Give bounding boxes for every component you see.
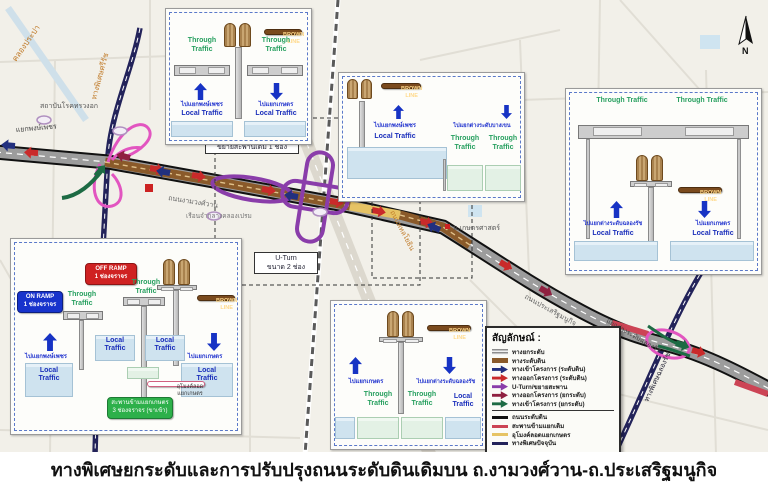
exit-ground-swatch <box>492 374 508 382</box>
north-label: N <box>742 46 749 56</box>
label-klong-prem-prison: เรือนจำกลางคลองเปรม <box>186 212 252 220</box>
elevated-deck <box>174 65 230 76</box>
monorail-train-icon <box>651 155 663 181</box>
local-road-bed <box>171 121 233 137</box>
center-pier <box>648 187 654 249</box>
legend-header: สัญลักษณ์ : <box>492 331 614 346</box>
brown-line-trains <box>224 23 251 47</box>
flyover-swatch <box>492 425 508 428</box>
brown-line-callout: BROWN LINE <box>264 29 302 35</box>
center-pier <box>235 47 242 119</box>
label-kasetsart-university: ม.เกษตรศาสตร์ <box>453 224 500 232</box>
local-road-bed <box>335 417 355 439</box>
direction-label-right: ไปแยกต่างระดับฉลองรัช <box>409 379 483 386</box>
through-traffic-label: Through Traffic <box>485 135 521 153</box>
project-map-poster: คลองประปา ทางพิเศษศรีรัช สถาบันโรคทรวงอก… <box>0 0 768 486</box>
direction-label-left: ไปแยกพงษ์เพชร <box>15 354 77 361</box>
direction-label-left: ไปแยกพงษ์เพชร <box>170 102 234 109</box>
north-arrow-icon: N <box>739 16 753 56</box>
bridge-callout-line1: สะพานข้ามแยกเกษตร <box>111 400 169 408</box>
elevated-deck-wide <box>578 125 749 139</box>
brown-line-trains <box>163 259 190 285</box>
direction-up-arrow <box>393 105 404 119</box>
direction-label-right: ไปแยกเกษตร <box>244 102 308 109</box>
cross-section-inset-b: BROWN LINE ไปแยกพงษ์เพชร Local Traffic T… <box>338 72 525 202</box>
through-traffic-label: Through Traffic <box>180 37 224 55</box>
monorail-train-icon <box>636 155 648 181</box>
direction-up-arrow <box>194 83 207 100</box>
local-traffic-label: Local Traffic <box>568 230 658 238</box>
elevated-deck <box>247 65 303 76</box>
monorail-train-icon <box>347 79 358 99</box>
poster-title: ทางพิเศษยกระดับและการปรับปรุงถนนระดับดิน… <box>51 455 717 484</box>
brown-line-trains <box>387 311 414 337</box>
through-traffic-label: Through Traffic <box>447 135 483 153</box>
direction-down-arrow <box>270 83 283 100</box>
through-traffic-label: Through Traffic <box>61 291 103 309</box>
monorail-train-icon <box>402 311 414 337</box>
direction-down-arrow <box>207 333 221 351</box>
brown-line-trains <box>347 79 372 99</box>
brown-line-trains <box>636 155 663 181</box>
local-road-bed <box>445 417 481 439</box>
brown-line-callout: BROWN LINE <box>197 295 235 301</box>
monorail-train-icon <box>224 23 236 47</box>
local-traffic-label: Local Traffic <box>151 337 179 354</box>
brown-line-label: BROWN LINE <box>449 328 470 342</box>
local-road-bed <box>574 241 658 261</box>
expand-bridge-text: ขยายสะพานเดิม 1 ช่อง <box>217 144 287 151</box>
on-ramp-line1: ON RAMP <box>21 294 59 302</box>
local-traffic-label: Local Traffic <box>443 393 483 410</box>
monorail-train-icon <box>387 311 399 337</box>
direction-down-arrow <box>443 357 456 374</box>
direction-label-left: ไปแยกพงษ์เพชร <box>349 123 441 130</box>
direction-up-arrow <box>349 357 362 374</box>
entrance-ground-swatch <box>492 365 508 373</box>
tunnel-callout: อุโมงค์ลอดแยกเกษตร <box>147 381 205 387</box>
elevated-road-swatch <box>492 349 508 355</box>
mall-marker <box>145 184 153 192</box>
local-traffic-label: Local Traffic <box>170 110 234 118</box>
through-traffic-label: Through Traffic <box>254 37 298 55</box>
through-traffic-label: Through Traffic <box>401 391 443 409</box>
local-traffic-label: Local Traffic <box>349 133 441 141</box>
entrance-elevated-swatch <box>492 400 508 408</box>
local-traffic-label: Local Traffic <box>244 110 308 118</box>
monorail-train-icon <box>163 259 175 285</box>
monorail-train-icon <box>239 23 251 47</box>
through-road-bed <box>401 417 443 439</box>
uturn-swatch <box>492 383 508 391</box>
direction-down-arrow <box>501 105 512 119</box>
legend-item: ทางยกระดับ <box>492 348 614 357</box>
legend-panel: สัญลักษณ์ : ทางยกระดับ ทางระดับดิน ทางเข… <box>485 326 621 454</box>
ramp-pier <box>79 320 84 370</box>
legend-item: ทางเข้าโครงการ (ยกระดับ) <box>492 400 614 409</box>
brown-line-callout: BROWN LINE <box>678 187 722 193</box>
label-phongphet-intersection: แยกพงษ์เพชร <box>15 122 57 134</box>
local-road-bed <box>347 147 447 179</box>
through-traffic-label: Through Traffic <box>357 391 399 409</box>
cross-section-inset-c: Through Traffic Through Traffic BROWN LI… <box>565 88 762 275</box>
kasetsart-marker <box>445 224 450 229</box>
on-ramp-callout: ON RAMP 1 ช่องจราจร <box>17 291 63 313</box>
local-road-bed <box>670 241 754 261</box>
brown-line-label: BROWN LINE <box>216 298 237 312</box>
through-traffic-label: Through Traffic <box>592 97 652 106</box>
direction-label-right: ไปแยกเกษตร <box>670 221 756 228</box>
monorail-train-icon <box>178 259 190 285</box>
underpass-through-bed <box>485 165 521 191</box>
tunnel-box <box>127 367 159 379</box>
brown-line-callout: BROWN LINE <box>427 325 471 331</box>
direction-up-arrow <box>610 201 623 218</box>
title-bar: ทางพิเศษยกระดับและการปรับปรุงถนนระดับดิน… <box>0 452 768 486</box>
direction-label-right: ไปแยกเกษตร <box>175 354 235 361</box>
through-traffic-label: Through Traffic <box>672 97 732 106</box>
uturn-text-line2: ขนาด 2 ช่อง <box>258 263 314 272</box>
tunnel-swatch <box>492 433 508 436</box>
exit-elevated-swatch <box>492 391 508 399</box>
local-traffic-label: Local Traffic <box>670 230 756 238</box>
bridge-callout: สะพานข้ามแยกเกษตร 3 ช่องจราจร (ขาเข้า) <box>107 397 173 419</box>
local-traffic-label: Local Traffic <box>101 337 129 354</box>
cross-section-inset-a: BROWN LINE Through Traffic Through Traff… <box>165 8 312 145</box>
brown-line-label: BROWN LINE <box>401 86 422 100</box>
direction-label-left: ไปแยกเกษตร <box>333 379 399 386</box>
ground-street-swatch <box>492 416 508 419</box>
off-ramp-line1: OFF RAMP <box>89 266 133 274</box>
direction-label-right: ไปแยกต่างระดับบางเขน <box>443 123 521 130</box>
ground-road-swatch <box>492 358 508 363</box>
on-ramp-deck <box>63 311 103 320</box>
direction-up-arrow <box>43 333 57 351</box>
tunnel-callout-label: อุโมงค์ลอดแยกเกษตร <box>176 384 204 398</box>
monorail-train-icon <box>361 79 372 99</box>
cross-section-inset-d: ON RAMP 1 ช่องจราจร OFF RAMP 1 ช่องจราจร… <box>10 238 242 435</box>
legend-item: ทางพิเศษปัจจุบัน <box>492 439 614 448</box>
underpass-wall <box>443 159 446 191</box>
local-traffic-label: Local Traffic <box>29 367 69 384</box>
underpass-through-bed <box>447 165 483 191</box>
bridge-callout-line2: 3 ช่องจราจร (ขาเข้า) <box>111 408 169 416</box>
on-ramp-line2: 1 ช่องจราจร <box>21 302 59 310</box>
existing-expressway-swatch <box>492 442 508 445</box>
through-road-bed <box>357 417 399 439</box>
uturn-text-line1: U-Turn <box>258 254 314 263</box>
cross-section-inset-e: BROWN LINE ไปแยกเกษตร ไปแยกต่างระดับฉลอง… <box>330 300 487 450</box>
off-ramp-deck <box>123 297 165 306</box>
direction-label-left: ไปแยกต่างระดับฉลองรัช <box>568 221 658 228</box>
local-road-bed <box>244 121 306 137</box>
brown-line-callout: BROWN LINE <box>381 83 421 89</box>
label-ngamwongwan-road: ถนนงามวงศ์วาน <box>168 194 219 210</box>
label-chest-institute: สถาบันโรคทรวงอก <box>40 101 98 110</box>
uturn-note: U-Turn ขนาด 2 ช่อง <box>254 252 318 274</box>
legend-divider <box>492 410 614 411</box>
